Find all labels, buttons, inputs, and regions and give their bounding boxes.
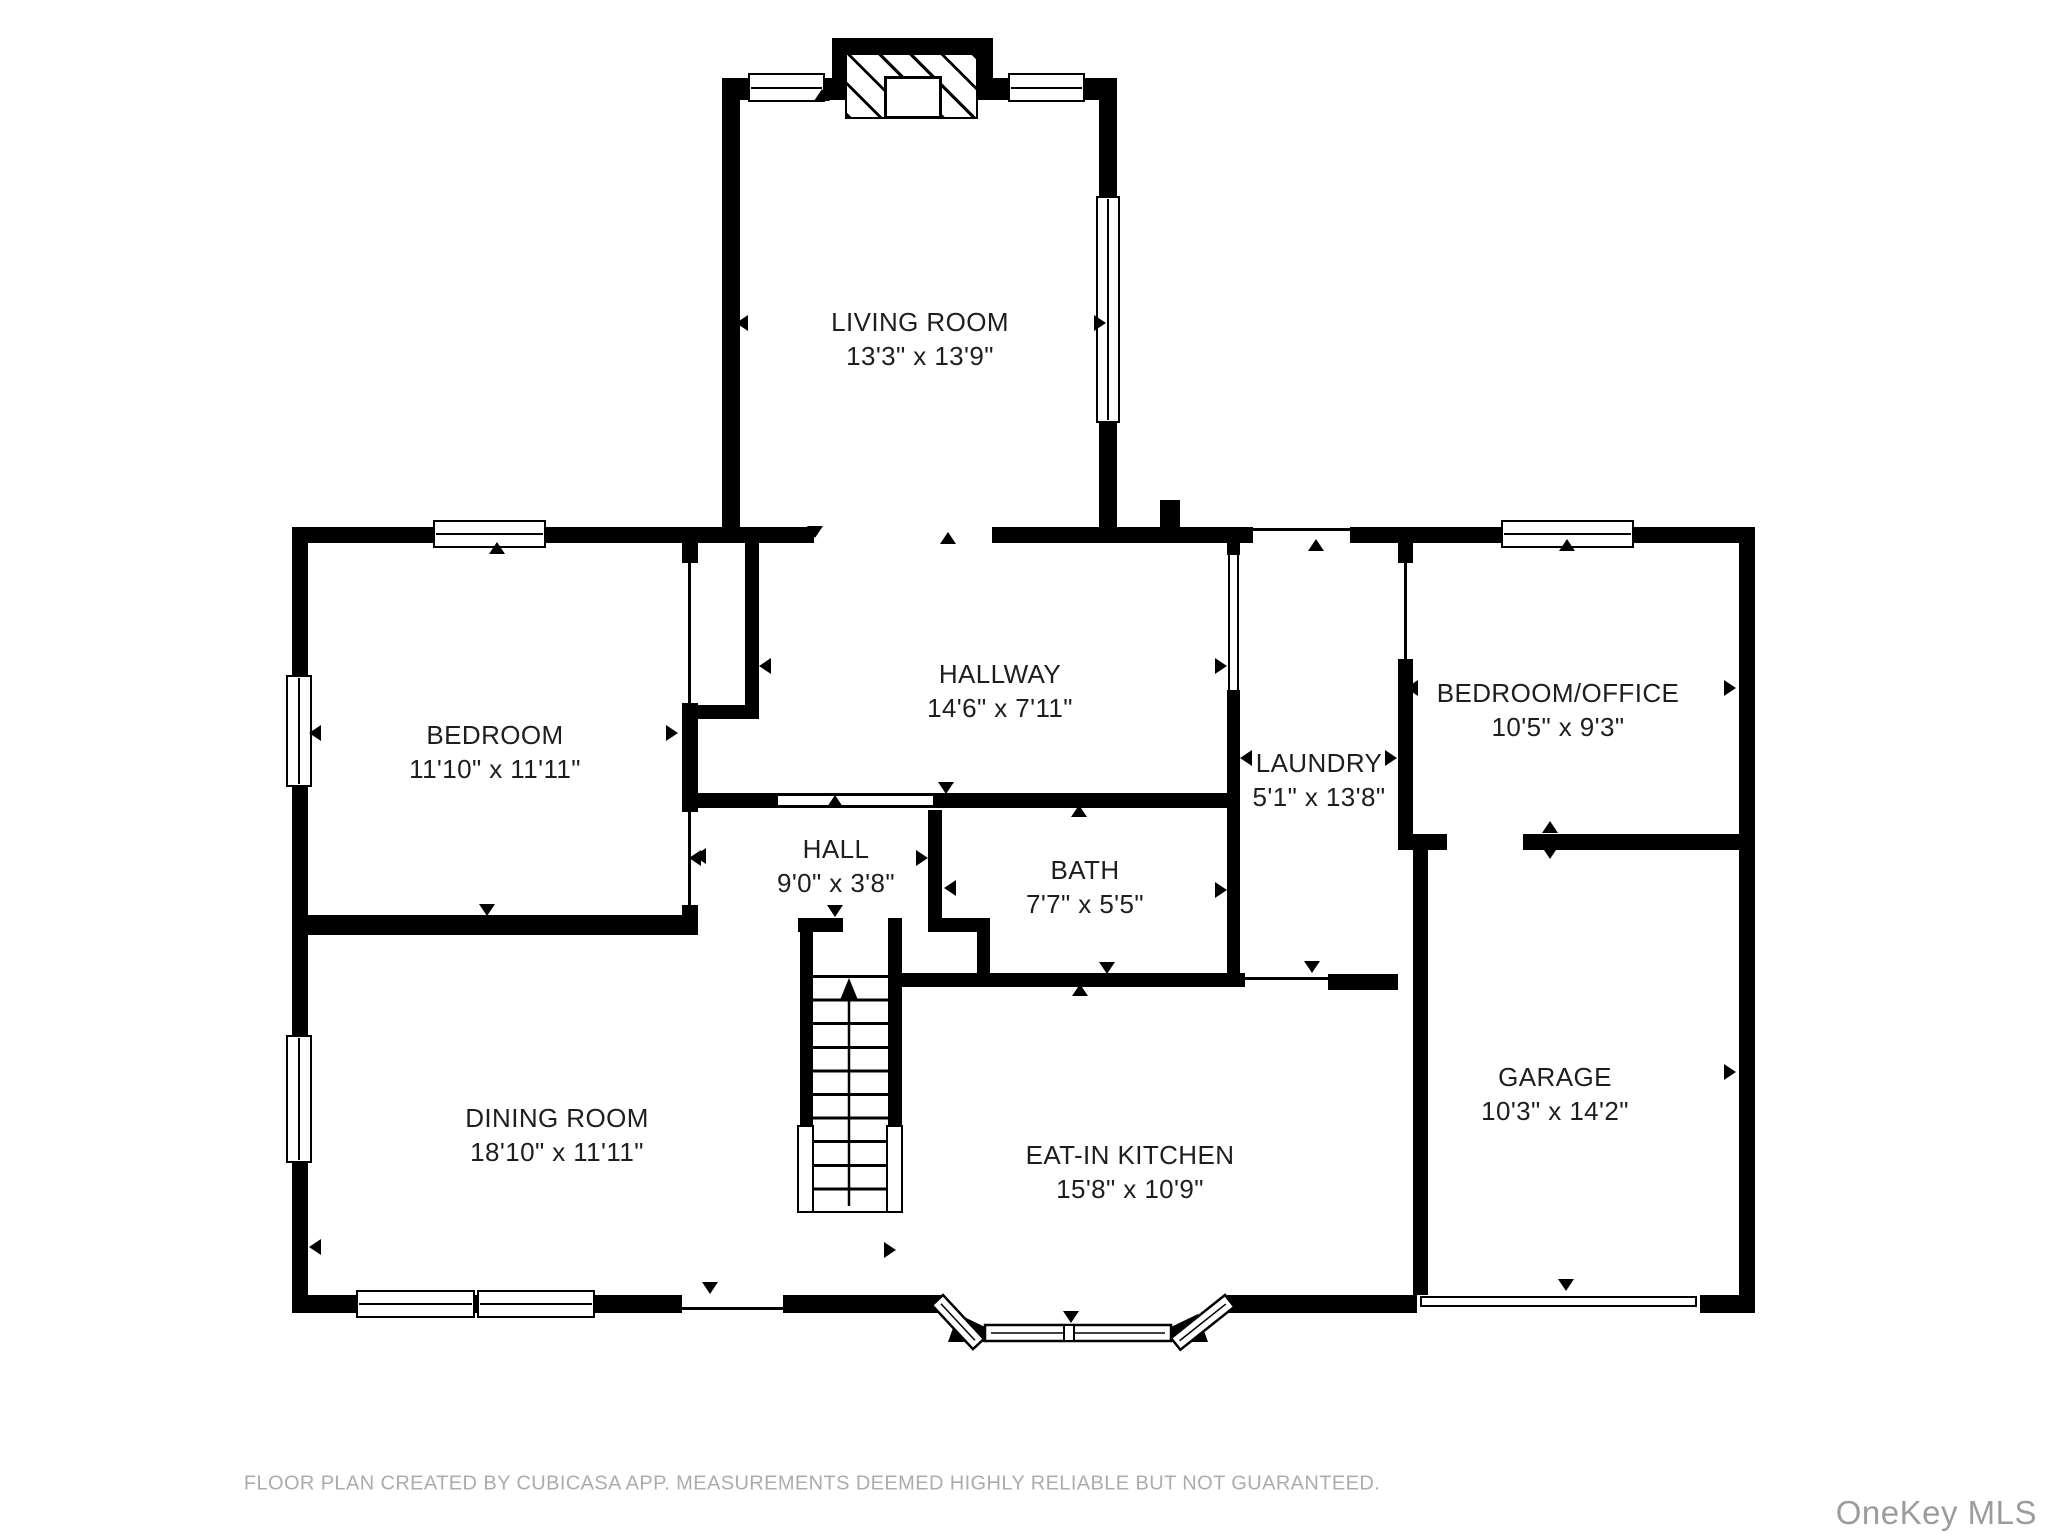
room-dimensions: 7'7" x 5'5": [1026, 887, 1144, 921]
room-name: EAT-IN KITCHEN: [1026, 1138, 1235, 1172]
window-livingroom-top-right: [1008, 73, 1085, 102]
hall-opening-line-b: [778, 805, 933, 808]
rear-door-line: [1253, 528, 1350, 531]
arrow-left-icon: [1240, 750, 1252, 766]
room-dimensions: 18'10" x 11'11": [465, 1135, 649, 1169]
window-dining-left: [286, 1035, 312, 1163]
arrow-down-icon: [1063, 1311, 1079, 1323]
arrow-right-icon: [1215, 658, 1227, 674]
wall-bath-stub: [928, 918, 990, 932]
window-dining-bottom-2: [477, 1290, 595, 1318]
wall-livingroom-left: [722, 78, 740, 543]
arrow-up-icon: [1308, 539, 1324, 551]
stair-stringer-right: [886, 1125, 903, 1213]
arrow-right-icon: [666, 725, 678, 741]
wall-exterior-right: [1739, 527, 1755, 1313]
wall-office-left-top: [1398, 527, 1413, 563]
window-dining-bottom-1: [356, 1290, 475, 1318]
room-dimensions: 13'3" x 13'9": [831, 339, 1009, 373]
room-label-laundry: LAUNDRY5'1" x 13'8": [1253, 746, 1386, 814]
room-name: LIVING ROOM: [831, 305, 1009, 339]
room-name: HALL: [777, 832, 895, 866]
laundry-bottom-door-line: [1242, 977, 1328, 980]
mls-watermark: OneKey MLS: [1836, 1494, 2037, 1532]
room-name: LAUNDRY: [1253, 746, 1386, 780]
arrow-down-icon: [702, 1282, 718, 1294]
wall-livingroom-right-upper: [1099, 78, 1117, 198]
arrow-right-icon: [1385, 750, 1397, 766]
office-door-line: [1404, 563, 1407, 659]
wall-bedroom-bottom: [308, 915, 682, 935]
wall-hall-top-left: [690, 793, 778, 808]
wall-stair-stub: [798, 918, 843, 932]
room-dimensions: 11'10" x 11'11": [409, 752, 581, 786]
arrow-down-icon: [827, 905, 843, 917]
arrow-down-icon: [938, 782, 954, 794]
arrow-up-icon: [1072, 984, 1088, 996]
room-dimensions: 5'1" x 13'8": [1253, 780, 1386, 814]
arrow-left-icon: [309, 725, 321, 741]
hall-opening-line-a: [778, 793, 933, 796]
arrow-left-icon: [759, 658, 771, 674]
wall-garage-left: [1413, 850, 1428, 1295]
arrow-down-icon: [1542, 847, 1558, 859]
arrow-left-icon: [736, 315, 748, 331]
arrow-up-icon: [1071, 805, 1087, 817]
room-name: BEDROOM/OFFICE: [1437, 676, 1680, 710]
room-label-hallway: HALLWAY14'6" x 7'11": [927, 657, 1073, 725]
room-dimensions: 15'8" x 10'9": [1026, 1172, 1235, 1206]
arrow-down-icon: [479, 904, 495, 916]
arrow-left-icon: [309, 1239, 321, 1255]
wall-laundry-bottom: [1328, 974, 1398, 990]
arrow-left-icon: [944, 880, 956, 896]
room-name: BATH: [1026, 853, 1144, 887]
room-label-bedroom-office: BEDROOM/OFFICE10'5" x 9'3": [1437, 676, 1680, 744]
front-door-line: [682, 1307, 783, 1310]
wall-exterior-left: [292, 527, 308, 1313]
wall-kitchen-top: [892, 973, 1245, 987]
arrow-up-icon: [940, 532, 956, 544]
room-label-eat-in-kitchen: EAT-IN KITCHEN15'8" x 10'9": [1026, 1138, 1235, 1206]
wall-entry-stub: [1160, 500, 1180, 543]
arrow-right-icon: [916, 850, 928, 866]
room-name: HALLWAY: [927, 657, 1073, 691]
wall-livingroom-right-lower: [1099, 422, 1117, 543]
laundry-door-line-a: [1228, 553, 1230, 690]
arrow-down-icon: [1304, 961, 1320, 973]
wall-bath-left-upper: [928, 810, 942, 920]
arrow-up-icon: [814, 89, 830, 101]
room-label-bedroom: BEDROOM11'10" x 11'11": [409, 718, 581, 786]
arrow-left-icon: [1406, 680, 1418, 696]
wall-bedroom-right-top: [682, 543, 698, 563]
room-label-dining-room: DINING ROOM18'10" x 11'11": [465, 1101, 649, 1169]
arrow-down-icon: [807, 526, 823, 538]
arrow-right-icon: [1724, 1064, 1736, 1080]
arrow-right-icon: [1724, 680, 1736, 696]
opening-front-door: [682, 1295, 783, 1313]
arrow-down-icon: [1099, 962, 1115, 974]
arrow-left-icon: [694, 848, 706, 864]
wall-bath-left-lower: [977, 932, 990, 977]
room-name: BEDROOM: [409, 718, 581, 752]
fireplace-firebox: [884, 76, 942, 119]
arrow-right-icon: [1094, 315, 1106, 331]
laundry-door-line-b: [1237, 553, 1239, 690]
stair-stringer-left: [797, 1125, 814, 1213]
footer-disclaimer: FLOOR PLAN CREATED BY CUBICASA APP. MEAS…: [244, 1473, 1380, 1496]
wall-laundry-left: [1227, 690, 1240, 975]
room-dimensions: 10'3" x 14'2": [1481, 1094, 1629, 1128]
stairs-up-arrow-icon: [838, 978, 860, 1208]
window-livingroom-right: [1096, 196, 1120, 423]
room-label-hall: HALL9'0" x 3'8": [777, 832, 895, 900]
wall-office-bottom-left: [1398, 834, 1447, 850]
room-dimensions: 9'0" x 3'8": [777, 866, 895, 900]
room-label-garage: GARAGE10'3" x 14'2": [1481, 1060, 1629, 1128]
room-label-living-room: LIVING ROOM13'3" x 13'9": [831, 305, 1009, 373]
arrow-up-icon: [827, 795, 843, 807]
room-label-bath: BATH7'7" x 5'5": [1026, 853, 1144, 921]
wall-stair-left: [800, 932, 813, 1125]
garage-door: [1420, 1296, 1697, 1307]
wall-closet-stub: [690, 705, 759, 719]
arrow-right-icon: [884, 1242, 896, 1258]
arrow-right-icon: [1215, 882, 1227, 898]
room-name: DINING ROOM: [465, 1101, 649, 1135]
bedroom-closet-door-line: [688, 563, 691, 703]
arrow-up-icon: [489, 542, 505, 554]
wall-stair-right: [888, 918, 902, 1125]
room-name: GARAGE: [1481, 1060, 1629, 1094]
wall-bedroom-right-low: [682, 905, 698, 935]
floor-plan: LIVING ROOM13'3" x 13'9"BEDROOM11'10" x …: [0, 0, 2048, 1536]
arrow-up-icon: [1542, 821, 1558, 833]
arrow-up-icon: [1559, 539, 1575, 551]
room-dimensions: 14'6" x 7'11": [927, 691, 1073, 725]
opening-livingroom-hallway: [814, 527, 992, 543]
wall-closet-side: [745, 543, 759, 706]
room-dimensions: 10'5" x 9'3": [1437, 710, 1680, 744]
arrow-down-icon: [1558, 1279, 1574, 1291]
